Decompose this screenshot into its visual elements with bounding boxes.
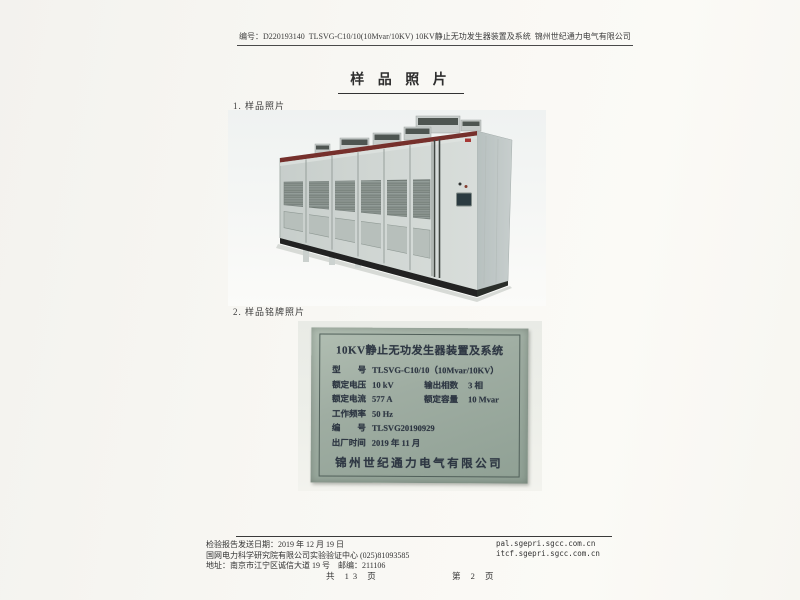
document-title: TLSVG-C10/10(10Mvar/10KV) 10KV静止无功发生器装置及… xyxy=(307,31,533,46)
scanned-report-page: 编号：D220193140 TLSVG-C10/10(10Mvar/10KV) … xyxy=(0,0,800,600)
nameplate-rows: 型 号TLSVG-C10/10（10Mvar/10KV） 额定电压10 kV输出… xyxy=(332,363,513,452)
nameplate-row: 额定电压10 kV输出相数3 相 xyxy=(332,377,513,393)
report-number: 编号：D220193140 xyxy=(237,31,307,46)
field-label: 额定容量 xyxy=(424,392,468,407)
report-sent-date: 检验报告发送日期：2019 年 12 月 19 日 xyxy=(206,540,409,551)
nameplate-photo: 10KV静止无功发生器装置及系统 型 号TLSVG-C10/10（10Mvar/… xyxy=(298,321,542,491)
equipment-photo xyxy=(228,110,546,306)
domain-line-2: itcf.sgepri.sgcc.com.cn xyxy=(496,549,600,559)
nameplate: 10KV静止无功发生器装置及系统 型 号TLSVG-C10/10（10Mvar/… xyxy=(311,327,529,483)
field-label: 工作频率 xyxy=(332,406,372,421)
field-value: 577 A xyxy=(372,392,424,407)
field-value: 10 kV xyxy=(372,377,424,392)
current-page: 第 2 页 xyxy=(452,570,498,582)
total-pages: 共 13 页 xyxy=(326,570,380,582)
footer-rule xyxy=(236,536,612,537)
page-header: 编号：D220193140 TLSVG-C10/10(10Mvar/10KV) … xyxy=(237,31,613,46)
testing-org: 国网电力科学研究院有限公司实验验证中心 (025)81093585 xyxy=(206,551,409,562)
brand-mark xyxy=(465,139,471,143)
field-label: 额定电流 xyxy=(332,392,372,407)
nameplate-company: 锦州世纪通力电气有限公司 xyxy=(320,454,519,471)
nameplate-row: 额定电流577 A额定容量10 Mvar xyxy=(332,392,513,408)
cabinet-illustration xyxy=(228,110,546,306)
page-title: 样 品 照 片 xyxy=(338,69,464,94)
nameplate-row: 编 号TLSVG20190929 xyxy=(332,421,513,437)
hmi-screen xyxy=(457,193,472,206)
field-label: 额定电压 xyxy=(332,377,372,392)
nameplate-row: 出厂时间2019 年 11 月 xyxy=(332,436,513,452)
nameplate-row: 型 号TLSVG-C10/10（10Mvar/10KV） xyxy=(332,363,513,379)
field-value: TLSVG-C10/10（10Mvar/10KV） xyxy=(372,365,499,376)
footer-domains: pal.sgepri.sgcc.com.cn itcf.sgepri.sgcc.… xyxy=(496,539,600,559)
field-label: 编 号 xyxy=(332,421,372,436)
field-label: 型 号 xyxy=(332,363,372,378)
footer-info: 检验报告发送日期：2019 年 12 月 19 日 国网电力科学研究院有限公司实… xyxy=(206,540,409,572)
cabinet-side-panel xyxy=(477,131,512,290)
nameplate-title: 10KV静止无功发生器装置及系统 xyxy=(320,341,519,358)
nameplate-frame: 10KV静止无功发生器装置及系统 型 号TLSVG-C10/10（10Mvar/… xyxy=(319,333,521,477)
field-label: 出厂时间 xyxy=(332,436,372,451)
nameplate-row: 工作频率50 Hz xyxy=(332,406,513,422)
field-value: 10 Mvar xyxy=(468,394,499,404)
field-value: TLSVG20190929 xyxy=(372,423,435,433)
field-value: 3 相 xyxy=(468,380,483,390)
company-name: 锦州世纪通力电气有限公司 xyxy=(533,31,633,46)
field-value: 2019 年 11 月 xyxy=(372,438,420,448)
field-label: 输出相数 xyxy=(424,378,468,393)
item-2-label: 2. 样品铭牌照片 xyxy=(233,305,305,318)
domain-line-1: pal.sgepri.sgcc.com.cn xyxy=(496,539,600,549)
field-value: 50 Hz xyxy=(372,409,393,419)
